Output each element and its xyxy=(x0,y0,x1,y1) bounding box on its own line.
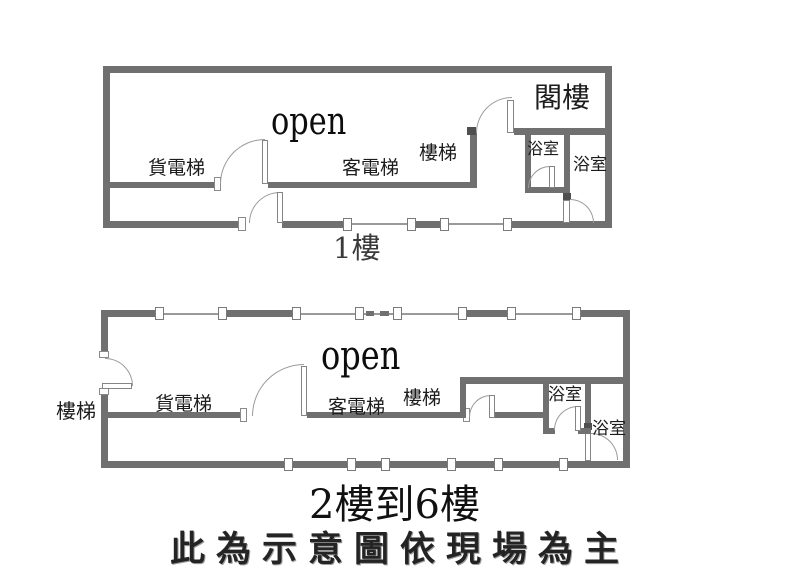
p1-door-arc xyxy=(220,139,265,184)
p2-wall-bottom xyxy=(101,461,630,468)
p2-door-leaf xyxy=(102,383,132,389)
p2-label-passenger-elevator: 客電梯 xyxy=(328,398,385,417)
floorplan-canvas: 貨電梯 open 客電梯 樓梯 閣樓 浴室 浴室 1樓 xyxy=(0,0,797,575)
p1-window-symbol xyxy=(407,218,416,231)
p2-window-symbol xyxy=(347,458,356,471)
p2-bathroom-wall xyxy=(585,383,591,423)
p2-wall-right xyxy=(623,310,630,468)
p2-door-arc xyxy=(105,358,133,386)
p1-wall-bottom-seg xyxy=(103,221,238,228)
p1-label-bathroom-right: 浴室 xyxy=(573,156,607,173)
p2-door-jamb xyxy=(99,388,109,395)
p2-window-symbol xyxy=(155,307,164,320)
p1-window-symbol xyxy=(503,218,512,231)
p1-door-hinge xyxy=(467,127,476,135)
p2-wall-top-thin xyxy=(163,313,218,315)
p1-wall-bottom-thin xyxy=(352,223,407,225)
p2-window-symbol xyxy=(218,307,227,320)
p1-door-jamb xyxy=(238,217,246,231)
p1-door-arc xyxy=(528,166,550,188)
p2-door-leaf xyxy=(575,406,581,431)
p1-door-arc xyxy=(570,199,594,223)
disclaimer-text: 此為示意圖依現場為主 xyxy=(170,532,630,567)
p2-label-stairs: 樓梯 xyxy=(403,389,441,408)
p1-label-attic: 閣樓 xyxy=(534,84,590,112)
p2-window-symbol xyxy=(494,458,503,471)
p2-wall-left xyxy=(101,392,108,468)
p2-door-arc xyxy=(469,395,491,417)
p2-window-symbol xyxy=(393,307,402,320)
p1-door-leaf xyxy=(549,166,555,188)
p1-caption: 1樓 xyxy=(333,234,380,263)
p2-wall-top-thin xyxy=(402,313,458,315)
p1-stair-wall xyxy=(470,131,477,188)
p2-window-symbol xyxy=(381,458,390,471)
p2-window-symbol xyxy=(507,307,516,320)
p1-door-leaf xyxy=(262,140,268,184)
p1-label-freight-elevator: 貨電梯 xyxy=(148,159,205,178)
p1-wall-bottom-seg xyxy=(415,221,440,228)
p2-door-jamb xyxy=(240,408,247,422)
p2-window-symbol xyxy=(355,307,364,320)
p1-bathroom-wall xyxy=(564,135,570,195)
p1-wall-top xyxy=(103,66,612,73)
p1-elevator-wall xyxy=(110,182,214,188)
p2-wall-top-thin xyxy=(515,313,572,315)
p1-attic-wall xyxy=(514,128,605,135)
p1-elevator-wall xyxy=(268,182,470,188)
p2-elevator-wall xyxy=(495,412,549,418)
p2-window-symbol xyxy=(292,307,301,320)
p1-door-leaf xyxy=(277,192,283,223)
p2-label-freight-elevator: 貨電梯 xyxy=(155,395,212,414)
p2-window-symbol xyxy=(572,307,581,320)
p1-door-leaf xyxy=(563,200,570,223)
p1-label-stairs: 樓梯 xyxy=(419,144,457,163)
p2-wall-top-seg xyxy=(227,310,292,317)
p2-wall-top-thin xyxy=(300,313,355,315)
p2-door-leaf xyxy=(489,395,495,418)
p1-wall-bottom-seg xyxy=(282,221,343,228)
p1-wall-bottom-thin xyxy=(448,223,503,225)
p2-label-open: open xyxy=(321,336,400,376)
p1-label-open: open xyxy=(271,102,346,140)
p1-wall-right xyxy=(605,66,612,228)
p2-window-symbol xyxy=(458,307,467,320)
p2-door-leaf xyxy=(301,366,307,416)
p2-caption: 2樓到6樓 xyxy=(309,485,480,525)
p1-label-passenger-elevator: 客電梯 xyxy=(342,159,399,178)
p2-window-symbol xyxy=(447,458,456,471)
p2-window-symbol xyxy=(559,458,568,471)
p1-wall-left xyxy=(103,66,110,228)
p1-door-arc xyxy=(249,192,280,223)
p2-door-arc xyxy=(252,364,304,416)
p1-window-symbol xyxy=(440,218,449,231)
p2-wall-top-seg xyxy=(101,310,155,317)
p2-label-stairs-outside: 樓梯 xyxy=(56,402,96,422)
p2-wall-top-dash xyxy=(366,311,374,316)
p2-label-bathroom-lower: 浴室 xyxy=(592,420,626,437)
p2-window-symbol xyxy=(284,458,293,471)
p1-window-symbol xyxy=(343,218,352,231)
p2-label-bathroom-upper: 浴室 xyxy=(548,386,582,403)
p1-door-leaf xyxy=(507,100,514,133)
p1-label-bathroom-left: 浴室 xyxy=(527,142,559,158)
p2-wall-top-seg xyxy=(467,310,507,317)
p2-door-jamb xyxy=(99,351,109,358)
p2-wall-top-dash xyxy=(380,311,389,316)
